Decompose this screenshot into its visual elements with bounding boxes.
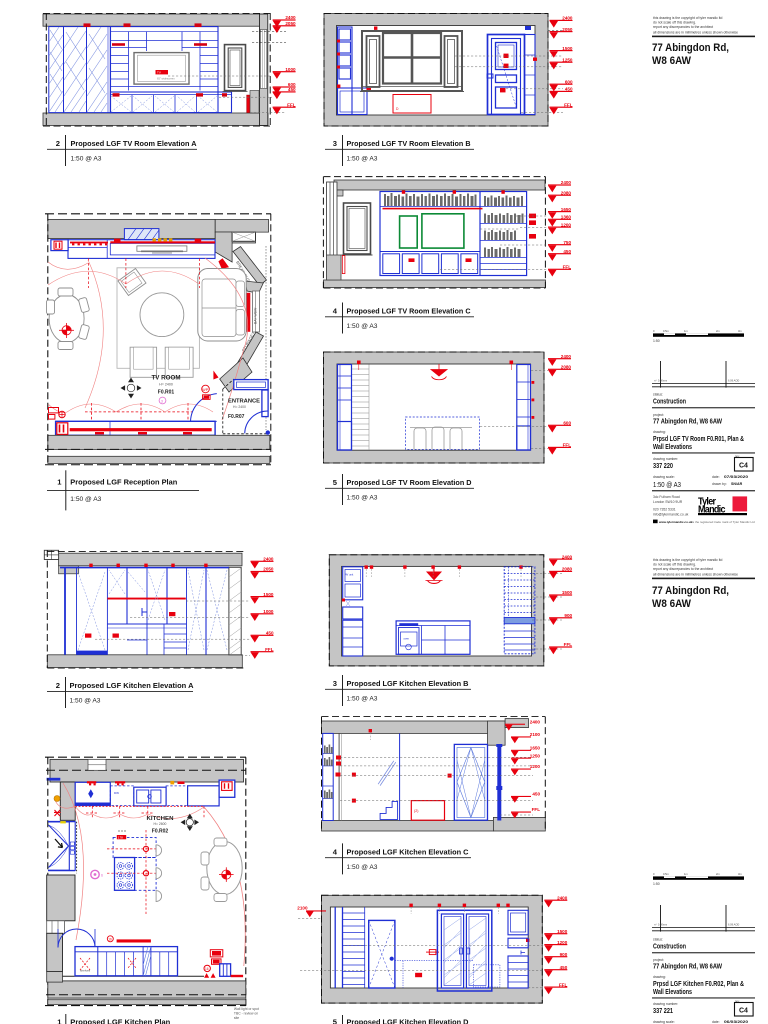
svg-text:2100: 2100 <box>530 732 541 737</box>
svg-text:FFL: FFL <box>559 982 568 987</box>
svg-text:Proposed LGF Kitchen Plan: Proposed LGF Kitchen Plan <box>70 1018 170 1024</box>
svg-text:Construction: Construction <box>653 397 686 406</box>
svg-text:this drawing is the copyright: this drawing is the copyright of tyler m… <box>653 558 722 562</box>
svg-text:Proposed LGF TV Room Elevation: Proposed LGF TV Room Elevation D <box>347 478 472 487</box>
svg-text:77 Abingdon Rd, W8 6AW: 77 Abingdon Rd, W8 6AW <box>653 417 722 426</box>
svg-text:report any discrepancies to th: report any discrepancies to the architec… <box>653 25 713 29</box>
svg-text:020 7352 5331: 020 7352 5331 <box>653 507 676 511</box>
svg-text:Proposed LGF Kitchen Elevation: Proposed LGF Kitchen Elevation C <box>347 847 469 856</box>
svg-text:KITCHEN: KITCHEN <box>147 816 174 822</box>
svg-text:337 221: 337 221 <box>653 1006 673 1015</box>
svg-text:1500: 1500 <box>263 592 274 597</box>
svg-text:1m: 1m <box>684 872 688 876</box>
svg-text:1250: 1250 <box>562 57 573 62</box>
svg-text:info@tylermandic.co.uk: info@tylermandic.co.uk <box>653 512 689 516</box>
svg-text:1:50 @ A3: 1:50 @ A3 <box>347 156 378 163</box>
svg-text:337 220: 337 220 <box>653 461 673 470</box>
svg-text:DW: DW <box>114 791 119 795</box>
svg-text:06/03/2020: 06/03/2020 <box>724 1020 748 1024</box>
svg-text:do not scale off this drawing.: do not scale off this drawing. <box>653 21 696 25</box>
svg-text:2400: 2400 <box>557 895 568 900</box>
svg-text:drawing scale:: drawing scale: <box>653 475 675 479</box>
svg-text:3: 3 <box>333 679 337 688</box>
svg-text:this drawing is the copyright: this drawing is the copyright of tyler m… <box>653 16 722 20</box>
svg-text:2m: 2m <box>716 872 720 876</box>
svg-text:6: 6 <box>101 874 103 878</box>
svg-text:TBC - review on: TBC - review on <box>234 1012 258 1016</box>
svg-text:is the registered trade mark o: is the registered trade mark of Tyler Ma… <box>692 520 755 524</box>
svg-text:450: 450 <box>565 87 573 92</box>
svg-text:SN/AR: SN/AR <box>731 482 743 486</box>
svg-text:2400: 2400 <box>263 557 274 562</box>
svg-text:2400: 2400 <box>285 15 296 20</box>
svg-text:1360: 1360 <box>561 215 572 220</box>
svg-text:W8 6AW: W8 6AW <box>652 55 692 67</box>
svg-text:1:50 @ A3: 1:50 @ A3 <box>70 496 101 503</box>
svg-text:16: 16 <box>108 937 112 941</box>
svg-text:F0.R01: F0.R01 <box>158 390 175 396</box>
svg-text:Wall Elevations: Wall Elevations <box>653 442 692 451</box>
svg-text:2050: 2050 <box>562 27 573 32</box>
svg-text:+/- 0.00mm: +/- 0.00mm <box>654 923 667 927</box>
svg-text:900: 900 <box>564 613 572 618</box>
svg-text:2400: 2400 <box>562 554 573 559</box>
svg-text:W8 6AW: W8 6AW <box>652 598 692 610</box>
svg-text:H= 2400: H= 2400 <box>233 405 246 409</box>
svg-text:do not scale off this drawing.: do not scale off this drawing. <box>653 563 696 567</box>
svg-text:all dimensions are in millimet: all dimensions are in millimetres unless… <box>653 572 738 576</box>
svg-text:3m: 3m <box>738 329 742 333</box>
svg-text:Proposed LGF Kitchen Elevation: Proposed LGF Kitchen Elevation D <box>347 1018 469 1024</box>
svg-text:900: 900 <box>560 952 568 957</box>
svg-text:drawing scale:: drawing scale: <box>653 1020 675 1024</box>
svg-text:FFL: FFL <box>563 265 572 270</box>
svg-text:1250: 1250 <box>530 753 541 758</box>
svg-text:450: 450 <box>266 631 274 636</box>
svg-text:1650: 1650 <box>530 746 541 751</box>
svg-text:1000: 1000 <box>263 609 274 614</box>
svg-text:C4: C4 <box>739 463 748 470</box>
svg-text:07/03/2020: 07/03/2020 <box>724 475 748 479</box>
svg-text:Proposed LGF TV Room Elevation: Proposed LGF TV Room Elevation C <box>347 307 471 316</box>
svg-text:Wall Elevations: Wall Elevations <box>653 987 692 996</box>
svg-text:1200: 1200 <box>561 222 572 227</box>
svg-text:2080: 2080 <box>561 190 572 195</box>
svg-text:H= 2600: H= 2600 <box>154 822 167 826</box>
svg-text:2080: 2080 <box>562 567 573 572</box>
svg-text:F0.R07: F0.R07 <box>228 414 245 420</box>
svg-text:WP: WP <box>202 388 208 392</box>
svg-text:C4: C4 <box>739 1008 748 1015</box>
svg-text:1500: 1500 <box>562 590 573 595</box>
svg-text:450: 450 <box>288 87 296 92</box>
svg-text:BAY WDW: BAY WDW <box>254 307 258 324</box>
svg-text:FFL: FFL <box>563 443 572 448</box>
svg-text:Proposed LGF TV Room Elevation: Proposed LGF TV Room Elevation A <box>71 139 197 148</box>
svg-text:600: 600 <box>563 421 571 426</box>
svg-text:2m: 2m <box>716 329 720 333</box>
svg-text:ENTRANCE: ENTRANCE <box>228 398 260 404</box>
svg-text:2050: 2050 <box>263 567 274 572</box>
svg-text:2400: 2400 <box>530 719 541 724</box>
svg-text:3m: 3m <box>738 872 742 876</box>
svg-text:1650: 1650 <box>561 207 572 212</box>
svg-text:3: 3 <box>333 139 337 148</box>
svg-text:77 Abingdon Rd, W8 6AW: 77 Abingdon Rd, W8 6AW <box>653 962 722 971</box>
svg-text:1:50 @ A3: 1:50 @ A3 <box>347 696 378 703</box>
svg-text:(2): (2) <box>414 809 418 813</box>
svg-text:77 Abingdon Rd,: 77 Abingdon Rd, <box>652 585 729 597</box>
svg-text:1m: 1m <box>684 329 688 333</box>
svg-text:report any discrepancies to th: report any discrepancies to the architec… <box>653 567 713 571</box>
svg-text:1:50 @ A3: 1:50 @ A3 <box>347 864 378 871</box>
svg-text:6.09 AOD: 6.09 AOD <box>728 379 739 383</box>
svg-text:2100: 2100 <box>297 906 308 911</box>
svg-text:1:50 @ A3: 1:50 @ A3 <box>347 495 378 502</box>
svg-text:6.09 AOD: 6.09 AOD <box>728 923 739 927</box>
svg-text:65" widescreen: 65" widescreen <box>157 76 175 80</box>
svg-text:77 Abingdon Rd,: 77 Abingdon Rd, <box>652 42 729 54</box>
svg-text:1:50 @ A3: 1:50 @ A3 <box>347 323 378 330</box>
svg-text:FFL: FFL <box>287 102 296 107</box>
svg-text:0.5m: 0.5m <box>663 872 669 876</box>
svg-text:+/- 0.00mm: +/- 0.00mm <box>654 379 667 383</box>
svg-text:0.5m: 0.5m <box>663 329 669 333</box>
svg-text:drawn by:: drawn by: <box>712 482 727 486</box>
svg-text:3dc Fulham Road: 3dc Fulham Road <box>653 495 680 499</box>
svg-text:1:50 @ A3: 1:50 @ A3 <box>653 480 681 489</box>
svg-text:F0.R02: F0.R02 <box>152 828 169 834</box>
svg-text:www.tylermandic.co.uk: www.tylermandic.co.uk <box>658 520 693 524</box>
svg-text:1200: 1200 <box>557 940 568 945</box>
svg-text:all dimensions are in millimet: all dimensions are in millimetres unless… <box>653 30 738 34</box>
svg-text:oven: oven <box>404 638 410 641</box>
svg-text:1000: 1000 <box>285 67 296 72</box>
svg-text:1500: 1500 <box>557 929 568 934</box>
svg-text:2080: 2080 <box>561 365 572 370</box>
svg-text:Proposed LGF Kitchen Elevation: Proposed LGF Kitchen Elevation B <box>347 679 469 688</box>
svg-text:1:50 @ A3: 1:50 @ A3 <box>70 698 101 705</box>
svg-text:TV ROOM: TV ROOM <box>152 376 181 382</box>
svg-text:H= 2400: H= 2400 <box>159 383 173 387</box>
svg-text:750: 750 <box>563 240 571 245</box>
svg-text:450: 450 <box>532 792 540 797</box>
svg-text:FFL: FFL <box>532 807 541 812</box>
svg-text:1:50 @ A3: 1:50 @ A3 <box>71 156 102 163</box>
svg-text:Proposed LGF Kitchen Elevation: Proposed LGF Kitchen Elevation A <box>70 681 195 690</box>
svg-text:1500: 1500 <box>562 46 573 51</box>
svg-text:178: 178 <box>118 836 123 840</box>
svg-text:site: site <box>234 1016 239 1020</box>
svg-text:450: 450 <box>563 249 571 254</box>
svg-text:450: 450 <box>560 965 568 970</box>
svg-text:date:: date: <box>712 1020 720 1024</box>
svg-text:2: 2 <box>56 139 60 148</box>
svg-text:600: 600 <box>565 79 573 84</box>
svg-text:FFL: FFL <box>265 647 274 652</box>
svg-text:2: 2 <box>56 681 60 690</box>
svg-text:2400: 2400 <box>561 354 572 359</box>
svg-text:AV unit: AV unit <box>345 573 353 577</box>
svg-text:FFL: FFL <box>564 642 573 647</box>
svg-text:Construction: Construction <box>653 942 686 951</box>
svg-text:Wall light or spot: Wall light or spot <box>234 1007 259 1011</box>
svg-text:date:: date: <box>712 475 720 479</box>
svg-text:London SW10 9UR: London SW10 9UR <box>653 500 683 504</box>
svg-text:16: 16 <box>205 967 209 971</box>
svg-text:1200: 1200 <box>530 764 541 769</box>
svg-text:1:50: 1:50 <box>653 339 660 343</box>
svg-text:2050: 2050 <box>285 21 296 26</box>
svg-text:2400: 2400 <box>561 180 572 185</box>
svg-text:TV: TV <box>157 71 161 75</box>
svg-text:1:50: 1:50 <box>653 882 660 886</box>
svg-text:2400: 2400 <box>562 16 573 21</box>
svg-text:Proposed LGF Reception Plan: Proposed LGF Reception Plan <box>70 478 177 487</box>
svg-text:FFL: FFL <box>564 102 573 107</box>
svg-text:Proposed LGF TV Room Elevation: Proposed LGF TV Room Elevation B <box>347 139 471 148</box>
